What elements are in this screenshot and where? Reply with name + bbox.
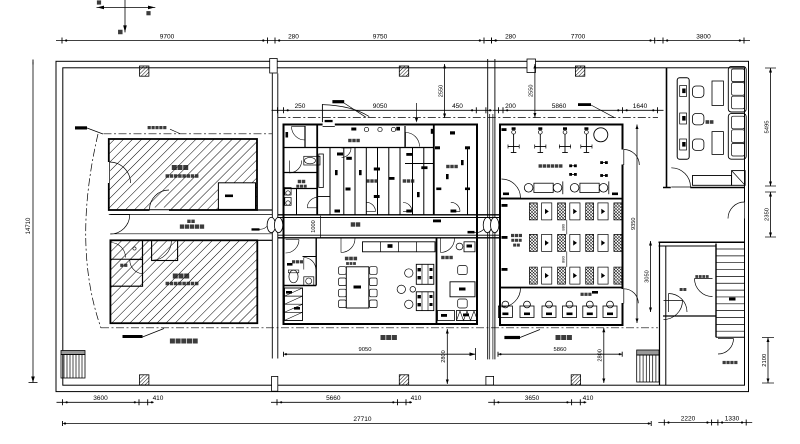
svg-text:280: 280 [288,33,299,40]
svg-text:250: 250 [295,103,306,110]
svg-text:5495: 5495 [764,121,770,134]
svg-text:2350: 2350 [764,208,770,221]
svg-text:1330: 1330 [725,415,740,422]
svg-text:2800: 2800 [441,350,447,362]
svg-text:5660: 5660 [326,395,341,402]
svg-text:280: 280 [505,33,516,40]
svg-text:7700: 7700 [571,33,586,40]
svg-text:3600: 3600 [93,395,108,402]
svg-text:410: 410 [153,395,164,402]
svg-text:9050: 9050 [359,347,372,353]
svg-text:410: 410 [583,395,594,402]
svg-text:1000: 1000 [311,220,317,232]
svg-text:880: 880 [561,223,566,230]
svg-text:3050: 3050 [644,270,650,282]
svg-text:9750: 9750 [373,33,388,40]
svg-text:3800: 3800 [696,33,711,40]
svg-text:27710: 27710 [353,416,371,423]
svg-text:9700: 9700 [160,33,175,40]
svg-text:2220: 2220 [681,415,696,422]
svg-text:410: 410 [411,395,422,402]
svg-text:450: 450 [452,103,463,110]
svg-text:5860: 5860 [552,103,567,110]
svg-text:2800: 2800 [598,349,604,361]
svg-text:2550: 2550 [438,85,444,97]
svg-text:3650: 3650 [525,395,540,402]
svg-text:2550: 2550 [529,85,535,97]
svg-text:2100: 2100 [762,354,768,367]
svg-text:880: 880 [561,255,566,262]
svg-text:9350: 9350 [631,218,637,230]
svg-text:5860: 5860 [554,347,567,353]
svg-text:14710: 14710 [26,217,32,234]
svg-text:9050: 9050 [373,103,388,110]
svg-text:1640: 1640 [633,103,648,110]
svg-text:200: 200 [505,103,516,110]
